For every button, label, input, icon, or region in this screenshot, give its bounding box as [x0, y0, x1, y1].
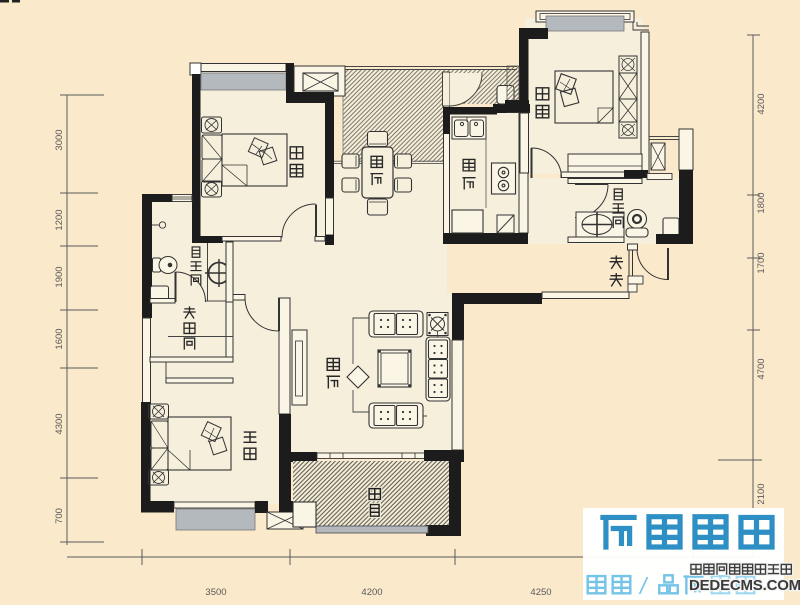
svg-text:1900: 1900 — [54, 266, 65, 287]
svg-text:4200: 4200 — [361, 587, 382, 598]
svg-text:2100: 2100 — [756, 483, 767, 504]
svg-text:3500: 3500 — [205, 587, 226, 598]
svg-text:4200: 4200 — [756, 93, 767, 114]
svg-text:3000: 3000 — [54, 129, 65, 150]
svg-text:4300: 4300 — [54, 413, 65, 434]
svg-text:4700: 4700 — [756, 358, 767, 379]
svg-text:DEDECMS.COM: DEDECMS.COM — [689, 577, 800, 594]
svg-text:1800: 1800 — [756, 192, 767, 213]
svg-text:1600: 1600 — [54, 328, 65, 349]
svg-text:1200: 1200 — [54, 209, 65, 230]
svg-text:700: 700 — [54, 508, 65, 524]
svg-text:4250: 4250 — [530, 587, 551, 598]
svg-text:1700: 1700 — [756, 252, 767, 273]
